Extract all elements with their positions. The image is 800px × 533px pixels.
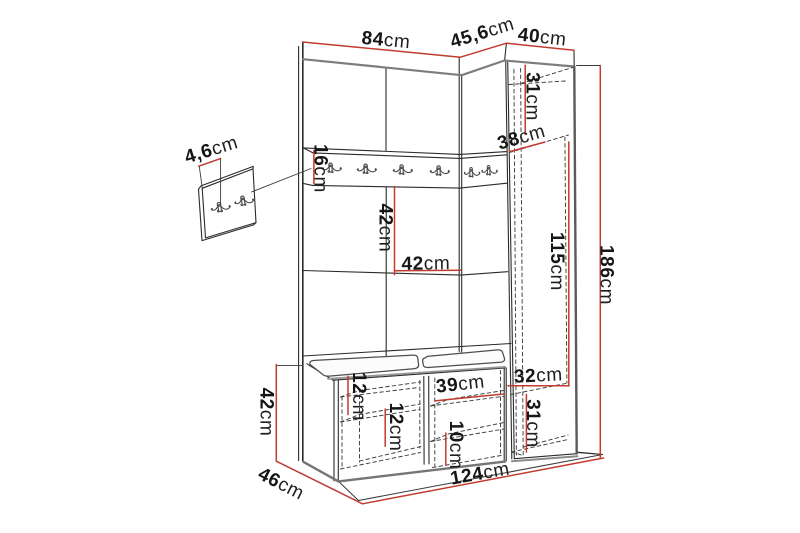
svg-text:12cm: 12cm: [385, 403, 406, 452]
svg-text:16cm: 16cm: [310, 144, 331, 193]
svg-text:186cm: 186cm: [596, 245, 617, 305]
svg-text:115cm: 115cm: [546, 232, 567, 291]
svg-text:42cm: 42cm: [401, 253, 450, 275]
svg-text:10cm: 10cm: [445, 421, 466, 470]
svg-text:42cm: 42cm: [375, 203, 396, 252]
svg-text:32cm: 32cm: [513, 364, 563, 388]
svg-text:31cm: 31cm: [522, 399, 543, 448]
svg-text:84cm: 84cm: [361, 28, 412, 53]
svg-text:12cm: 12cm: [348, 372, 369, 421]
svg-text:31cm: 31cm: [521, 72, 542, 121]
svg-text:42cm: 42cm: [256, 388, 277, 437]
